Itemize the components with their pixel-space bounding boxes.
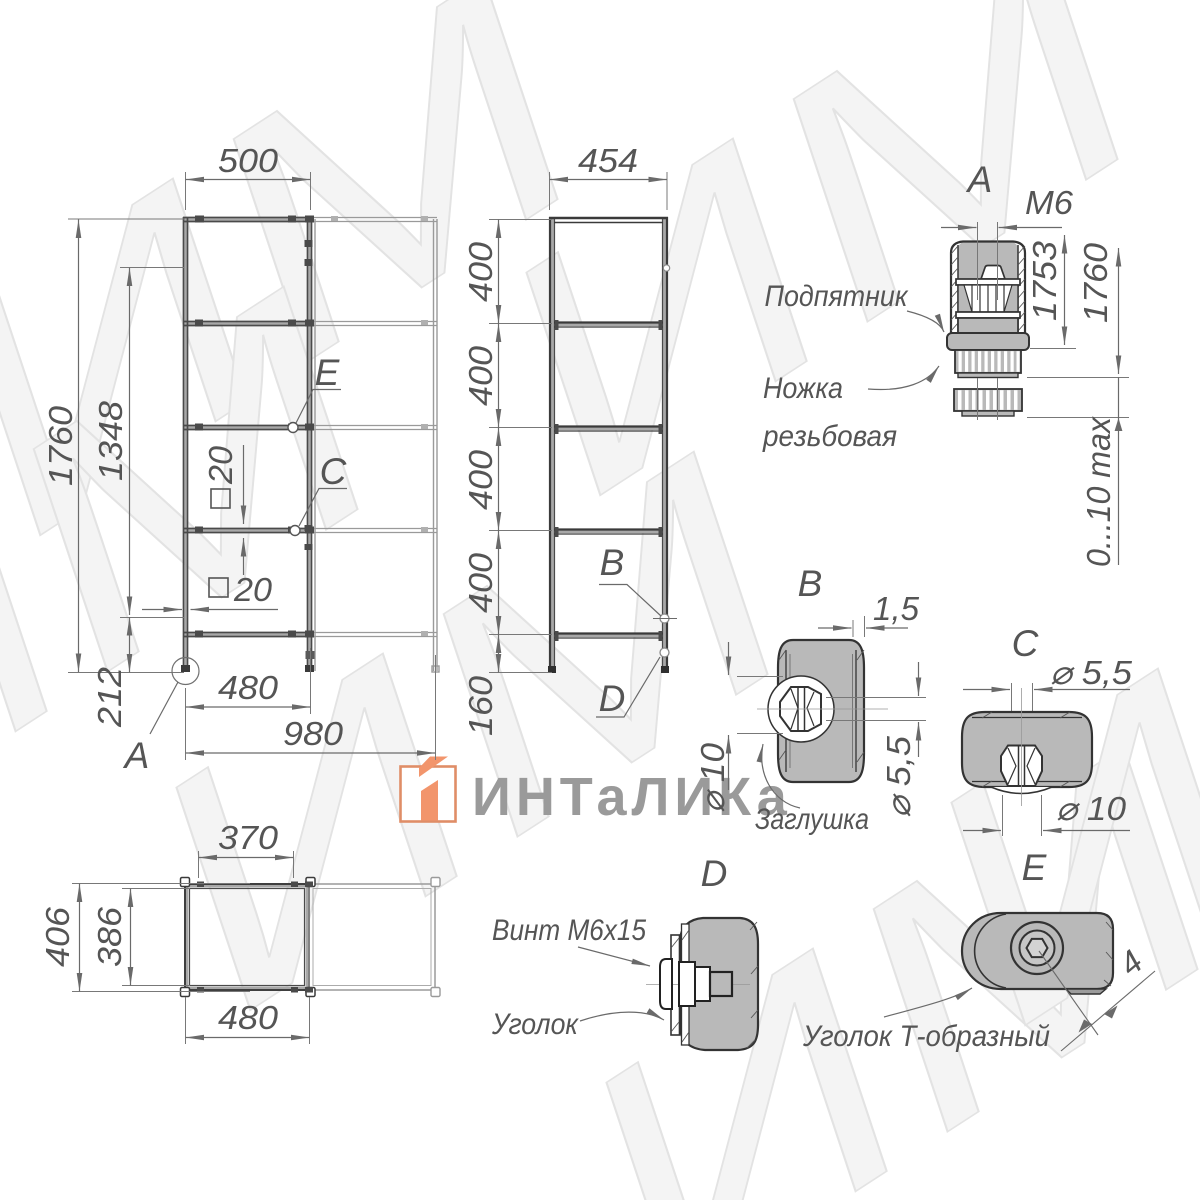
svg-text:400: 400 <box>462 345 499 406</box>
svg-text:⌀ 5,5: ⌀ 5,5 <box>1050 654 1133 691</box>
svg-text:Ножка: Ножка <box>763 372 843 405</box>
svg-text:0...10 mах: 0...10 mах <box>1080 416 1117 567</box>
svg-text:500: 500 <box>218 142 279 179</box>
svg-text:1,5: 1,5 <box>873 590 920 627</box>
svg-text:E: E <box>1022 847 1048 888</box>
svg-text:386: 386 <box>91 906 128 967</box>
svg-text:Подпятник: Подпятник <box>765 280 910 313</box>
svg-text:1753: 1753 <box>1026 240 1063 321</box>
svg-text:А: А <box>123 735 150 776</box>
svg-text:Уголок: Уголок <box>491 1008 580 1041</box>
svg-text:D: D <box>701 853 728 894</box>
svg-text:C: C <box>1012 623 1039 664</box>
svg-text:⌀ 10: ⌀ 10 <box>694 742 731 813</box>
svg-text:B: B <box>600 542 625 583</box>
svg-text:C: C <box>320 451 347 492</box>
svg-text:406: 406 <box>39 906 76 967</box>
svg-text:400: 400 <box>462 552 499 613</box>
svg-text:М6: М6 <box>1025 184 1074 221</box>
svg-text:Уголок Т-образный: Уголок Т-образный <box>802 1020 1050 1053</box>
svg-text:Винт М6х15: Винт М6х15 <box>492 914 646 947</box>
svg-text:B: B <box>798 563 823 604</box>
svg-text:1760: 1760 <box>42 405 79 486</box>
svg-text:480: 480 <box>218 669 279 706</box>
svg-text:⌀ 10: ⌀ 10 <box>1056 790 1127 827</box>
svg-text:20: 20 <box>202 445 239 485</box>
svg-text:1348: 1348 <box>92 400 129 481</box>
svg-text:А: А <box>966 159 993 200</box>
svg-text:160: 160 <box>462 675 499 736</box>
svg-text:ИНТаЛИКа: ИНТаЛИКа <box>472 767 792 827</box>
svg-text:454: 454 <box>578 142 638 179</box>
svg-text:980: 980 <box>283 715 344 752</box>
svg-text:1760: 1760 <box>1077 242 1114 323</box>
svg-text:⌀ 5,5: ⌀ 5,5 <box>880 735 917 818</box>
svg-text:212: 212 <box>91 667 128 728</box>
svg-text:20: 20 <box>233 571 273 608</box>
svg-text:резьбовая: резьбовая <box>762 420 897 453</box>
svg-text:E: E <box>315 352 341 393</box>
svg-text:D: D <box>599 678 626 719</box>
svg-text:370: 370 <box>218 819 279 856</box>
svg-text:Заглушка: Заглушка <box>755 803 869 836</box>
svg-text:480: 480 <box>218 999 279 1036</box>
svg-text:400: 400 <box>462 241 499 302</box>
svg-text:400: 400 <box>462 449 499 510</box>
